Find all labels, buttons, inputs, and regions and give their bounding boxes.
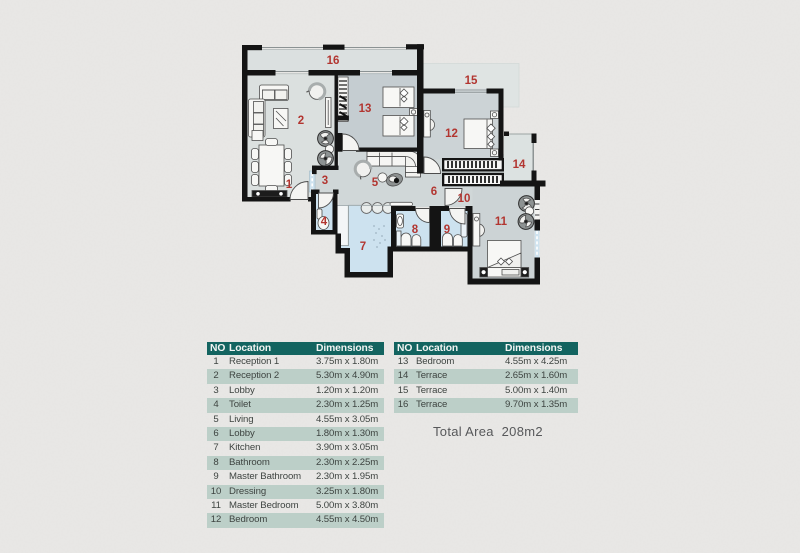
svg-text:14: 14 [513,159,526,171]
svg-text:12: 12 [445,128,458,140]
svg-text:1: 1 [286,179,293,191]
svg-text:7: 7 [360,241,366,253]
svg-text:10: 10 [458,193,471,205]
svg-text:8: 8 [412,224,419,236]
svg-text:16: 16 [327,55,340,67]
svg-text:11: 11 [495,216,508,228]
svg-text:13: 13 [359,103,372,115]
svg-text:5: 5 [372,177,379,189]
svg-text:6: 6 [431,186,437,198]
svg-text:4: 4 [321,216,328,228]
svg-text:2: 2 [298,115,304,127]
svg-text:9: 9 [444,224,450,236]
svg-text:3: 3 [322,175,328,187]
svg-text:15: 15 [465,75,478,87]
